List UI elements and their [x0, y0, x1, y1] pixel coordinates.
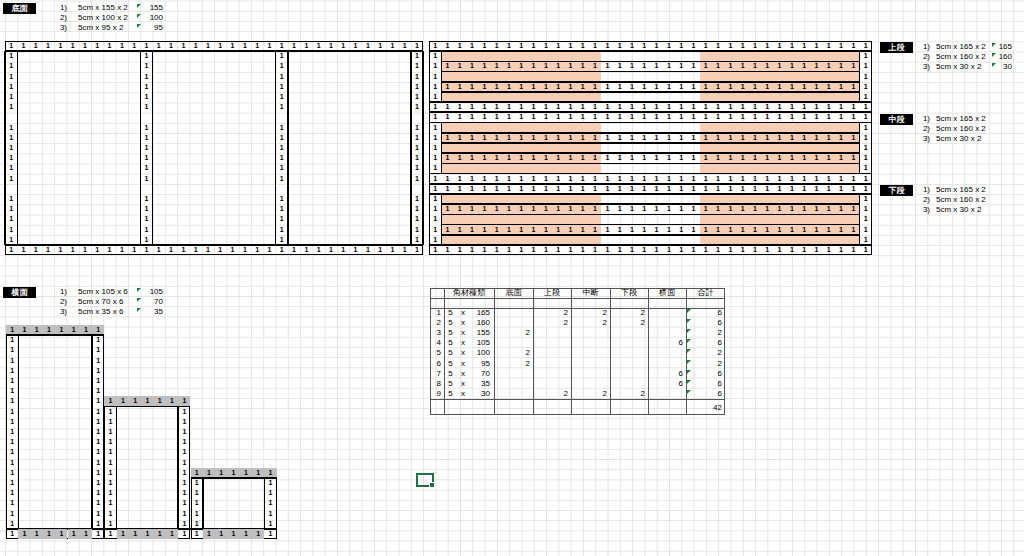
grid-one-cell: 1 [626, 153, 638, 163]
grid-one-cell: 1 [276, 204, 288, 214]
grid-one-cell: 1 [614, 82, 626, 92]
grid-one-cell: 1 [835, 102, 847, 112]
grid-one-cell: 1 [626, 133, 638, 143]
grid-one-cell: 1 [552, 204, 564, 214]
green-triangle-icon [687, 329, 691, 333]
green-triangle-icon [992, 43, 996, 47]
grid-one-cell: 1 [577, 41, 589, 51]
grid-one-cell: 1 [798, 133, 810, 143]
grid-one-cell: 1 [92, 488, 104, 498]
grid-one-cell: 1 [786, 174, 798, 184]
grid-one-cell: 1 [577, 61, 589, 71]
grid-one-cell: 1 [847, 61, 859, 71]
grid-one-cell: 1 [104, 529, 116, 539]
grid-one-cell: 1 [178, 407, 190, 417]
grid-one-cell: 1 [251, 245, 263, 255]
grid-one-cell: 1 [589, 245, 601, 255]
table-cell-count: 6 [686, 308, 722, 318]
grid-one-cell: 1 [614, 153, 626, 163]
grid-one-cell: 1 [687, 245, 699, 255]
grid-one-cell: 1 [5, 163, 17, 173]
grid-one-cell: 1 [264, 529, 276, 539]
grid-one-cell: 1 [491, 102, 503, 112]
grid-one-cell: 1 [454, 153, 466, 163]
grid-one-cell: 1 [601, 133, 613, 143]
grid-one-cell: 1 [411, 153, 423, 163]
grid-one-cell: 1 [860, 72, 872, 82]
label-side-face: 横面 [3, 287, 36, 298]
grid-one-cell: 1 [5, 133, 17, 143]
grid-one-cell: 1 [276, 41, 288, 51]
grid-one-cell: 1 [700, 112, 712, 122]
grid-one-cell: 1 [276, 133, 288, 143]
grid-one-cell: 1 [5, 153, 17, 163]
grid-one-cell: 1 [860, 235, 872, 245]
grid-one-cell: 1 [540, 82, 552, 92]
grid-one-cell: 1 [810, 41, 822, 51]
grid-one-cell: 1 [140, 123, 152, 133]
grid-one-cell: 1 [589, 225, 601, 235]
grid-one-cell: 1 [92, 529, 104, 539]
grid-one-cell: 1 [325, 245, 337, 255]
grid-one-cell: 1 [92, 519, 104, 529]
grid-one-cell: 1 [773, 61, 785, 71]
grid-one-cell: 1 [687, 225, 699, 235]
grid-one-cell: 1 [5, 102, 17, 112]
grid-one-cell: 1 [411, 214, 423, 224]
label-bottom-face: 底面 [3, 3, 36, 14]
grid-one-cell: 1 [700, 184, 712, 194]
grid-one-cell: 1 [749, 41, 761, 51]
grid-one-cell: 1 [577, 153, 589, 163]
grid-one-cell: 1 [860, 225, 872, 235]
grid-one-cell: 1 [454, 184, 466, 194]
table-cell-count: 6 [686, 318, 722, 328]
grid-one-cell: 1 [835, 41, 847, 51]
table-grand-total: 42 [686, 403, 722, 413]
grid-one-cell: 1 [810, 112, 822, 122]
grid-one-cell: 1 [349, 41, 361, 51]
grid-one-cell: 1 [810, 133, 822, 143]
grid-one-cell: 1 [601, 61, 613, 71]
grid-one-cell: 1 [140, 174, 152, 184]
grid-one-cell: 1 [761, 184, 773, 194]
grid-one-cell: 1 [466, 153, 478, 163]
grid-one-cell: 1 [491, 184, 503, 194]
grid-one-cell: 1 [527, 102, 539, 112]
grid-one-cell: 1 [503, 102, 515, 112]
grid-one-cell: 1 [614, 102, 626, 112]
grid-one-cell: 1 [18, 325, 30, 335]
grid-one-cell: 1 [786, 184, 798, 194]
grid-one-cell: 1 [6, 427, 18, 437]
grid-one-cell: 1 [823, 245, 835, 255]
grid-one-cell: 1 [466, 112, 478, 122]
table-cell-length: 70 [469, 369, 490, 379]
table-row-number: 6 [430, 359, 441, 369]
grid-one-cell: 1 [515, 204, 527, 214]
spreadsheet-grid: 1111111111111111111111111111111111111111… [0, 0, 1024, 556]
grid-one-cell: 1 [92, 417, 104, 427]
grid-one-cell: 1 [491, 245, 503, 255]
cut-list-item-value: 35 [137, 307, 163, 317]
grid-one-cell: 1 [564, 82, 576, 92]
grid-one-cell: 1 [860, 153, 872, 163]
table-cell-count: 2 [610, 389, 645, 399]
grid-one-cell: 1 [712, 204, 724, 214]
grid-one-cell: 1 [577, 174, 589, 184]
grid-one-cell: 1 [140, 133, 152, 143]
grid-one-cell: 1 [712, 245, 724, 255]
green-triangle-icon [687, 309, 691, 313]
grid-one-cell: 1 [712, 41, 724, 51]
grid-one-cell: 1 [749, 245, 761, 255]
cut-list-item-number: 1) [918, 185, 930, 195]
grid-one-cell: 1 [178, 458, 190, 468]
grid-one-cell: 1 [749, 133, 761, 143]
grid-one-cell: 1 [6, 498, 18, 508]
grid-one-cell: 1 [104, 498, 116, 508]
grid-one-cell: 1 [700, 133, 712, 143]
grid-one-cell: 1 [441, 245, 453, 255]
cut-list-item-text: 5cm x 155 x 2 [78, 3, 128, 13]
grid-one-cell: 1 [823, 112, 835, 122]
grid-one-cell: 1 [847, 41, 859, 51]
grid-one-cell: 1 [515, 245, 527, 255]
grid-one-cell: 1 [116, 41, 128, 51]
grid-one-cell: 1 [68, 529, 80, 539]
grid-one-cell: 1 [626, 184, 638, 194]
grid-one-cell: 1 [712, 174, 724, 184]
grid-one-cell: 1 [263, 41, 275, 51]
grid-one-cell: 1 [325, 41, 337, 51]
grid-one-cell: 1 [724, 153, 736, 163]
grid-one-cell: 1 [749, 225, 761, 235]
grid-one-cell: 1 [552, 245, 564, 255]
grid-one-cell: 1 [441, 102, 453, 112]
grid-one-cell: 1 [466, 133, 478, 143]
grid-one-cell: 1 [515, 225, 527, 235]
grid-one-cell: 1 [601, 102, 613, 112]
grid-one-cell: 1 [638, 82, 650, 92]
grid-one-cell: 1 [552, 41, 564, 51]
grid-one-cell: 1 [663, 153, 675, 163]
grid-one-cell: 1 [441, 153, 453, 163]
grid-one-cell: 1 [79, 41, 91, 51]
grid-one-cell: 1 [466, 174, 478, 184]
grid-one-cell: 1 [860, 214, 872, 224]
grid-one-cell: 1 [564, 133, 576, 143]
grid-one-cell: 1 [724, 225, 736, 235]
grid-one-cell: 1 [92, 396, 104, 406]
grid-one-cell: 1 [663, 133, 675, 143]
grid-one-cell: 1 [712, 133, 724, 143]
grid-one-cell: 1 [276, 214, 288, 224]
grid-one-cell: 1 [429, 72, 441, 82]
grid-one-cell: 1 [601, 204, 613, 214]
grid-one-cell: 1 [191, 509, 203, 519]
grid-one-cell: 1 [712, 184, 724, 194]
upper-tier-drawing: 1111111111111111111111111111111111111111… [429, 41, 872, 112]
grid-one-cell: 1 [214, 245, 226, 255]
label-lower-tier: 下段 [880, 185, 913, 196]
grid-one-cell: 1 [55, 529, 67, 539]
grid-one-cell: 1 [5, 123, 17, 133]
table-cell-x: x [457, 359, 469, 369]
grid-one-cell: 1 [700, 102, 712, 112]
grid-one-cell: 1 [411, 225, 423, 235]
grid-one-cell: 1 [178, 529, 190, 539]
grid-one-cell: 1 [104, 427, 116, 437]
grid-one-cell: 1 [552, 174, 564, 184]
grid-one-cell: 1 [429, 143, 441, 153]
grid-one-cell: 1 [810, 184, 822, 194]
grid-one-cell: 1 [441, 112, 453, 122]
grid-one-cell: 1 [638, 102, 650, 112]
grid-one-cell: 1 [503, 82, 515, 92]
table-cell-count: 2 [571, 308, 607, 318]
grid-one-cell: 1 [202, 41, 214, 51]
grid-one-cell: 1 [300, 245, 312, 255]
grid-one-cell: 1 [80, 325, 92, 335]
grid-one-cell: 1 [6, 458, 18, 468]
grid-one-cell: 1 [724, 245, 736, 255]
grid-one-cell: 1 [104, 478, 116, 488]
green-triangle-icon [992, 63, 996, 67]
grid-one-cell: 1 [724, 184, 736, 194]
grid-one-cell: 1 [823, 174, 835, 184]
grid-one-cell: 1 [773, 41, 785, 51]
grid-one-cell: 1 [798, 184, 810, 194]
grid-one-cell: 1 [503, 153, 515, 163]
grid-one-cell: 1 [441, 174, 453, 184]
grid-one-cell: 1 [140, 61, 152, 71]
grid-one-cell: 1 [700, 61, 712, 71]
grid-one-cell: 1 [411, 163, 423, 173]
cut-list-item-text: 5cm x 30 x 2 [936, 62, 981, 72]
label-upper-tier: 上段 [880, 42, 913, 53]
grid-one-cell: 1 [103, 245, 115, 255]
grid-one-cell: 1 [411, 82, 423, 92]
table-cell-count: 6 [648, 369, 683, 379]
grid-one-cell: 1 [177, 41, 189, 51]
grid-one-cell: 1 [411, 143, 423, 153]
fill-handle[interactable] [429, 482, 435, 488]
grid-one-cell: 1 [6, 386, 18, 396]
grid-one-cell: 1 [798, 245, 810, 255]
grid-one-cell: 1 [700, 174, 712, 184]
grid-one-cell: 1 [737, 112, 749, 122]
grid-one-cell: 1 [564, 225, 576, 235]
grid-one-cell: 1 [128, 245, 140, 255]
grid-one-cell: 1 [466, 82, 478, 92]
grid-one-cell: 1 [429, 194, 441, 204]
grid-one-cell: 1 [540, 41, 552, 51]
grid-one-cell: 1 [178, 417, 190, 427]
grid-one-cell: 1 [638, 41, 650, 51]
grid-one-cell: 1 [263, 245, 275, 255]
grid-one-cell: 1 [478, 82, 490, 92]
grid-one-cell: 1 [798, 204, 810, 214]
grid-one-cell: 1 [798, 153, 810, 163]
grid-one-cell: 1 [614, 184, 626, 194]
table-cell-length: 155 [469, 328, 490, 338]
grid-one-cell: 1 [6, 325, 18, 335]
grid-one-cell: 1 [92, 376, 104, 386]
grid-one-cell: 1 [749, 102, 761, 112]
cut-list-item-text: 5cm x 160 x 2 [936, 195, 986, 205]
table-cell-length: 30 [469, 389, 490, 399]
grid-one-cell: 1 [810, 245, 822, 255]
grid-one-cell: 1 [104, 447, 116, 457]
grid-one-cell: 1 [515, 61, 527, 71]
grid-one-cell: 1 [239, 41, 251, 51]
grid-one-cell: 1 [166, 529, 178, 539]
grid-one-cell: 1 [712, 112, 724, 122]
grid-one-cell: 1 [663, 112, 675, 122]
grid-one-cell: 1 [847, 245, 859, 255]
grid-one-cell: 1 [638, 204, 650, 214]
grid-one-cell: 1 [860, 41, 872, 51]
grid-one-cell: 1 [92, 478, 104, 488]
grid-one-cell: 1 [178, 519, 190, 529]
grid-one-cell: 1 [835, 225, 847, 235]
grid-one-cell: 1 [675, 204, 687, 214]
table-cell-x: x [457, 338, 469, 348]
grid-one-cell: 1 [860, 102, 872, 112]
grid-one-cell: 1 [178, 437, 190, 447]
grid-one-cell: 1 [276, 194, 288, 204]
grid-one-cell: 1 [140, 143, 152, 153]
grid-one-cell: 1 [313, 245, 325, 255]
grid-one-cell: 1 [79, 245, 91, 255]
grid-one-cell: 1 [6, 468, 18, 478]
grid-one-cell: 1 [577, 112, 589, 122]
grid-one-cell: 1 [540, 153, 552, 163]
grid-one-cell: 1 [847, 184, 859, 194]
grid-one-cell: 1 [798, 225, 810, 235]
grid-one-cell: 1 [601, 82, 613, 92]
grid-one-cell: 1 [650, 61, 662, 71]
grid-one-cell: 1 [92, 458, 104, 468]
grid-one-cell: 1 [411, 41, 423, 51]
grid-one-cell: 1 [6, 519, 18, 529]
active-cell-selection[interactable] [416, 473, 434, 487]
grid-one-cell: 1 [429, 51, 441, 61]
table-cell-x: x [457, 308, 469, 318]
grid-one-cell: 1 [515, 153, 527, 163]
green-triangle-icon [687, 349, 691, 353]
cut-list-item-text: 5cm x 30 x 2 [936, 205, 981, 215]
grid-one-cell: 1 [601, 184, 613, 194]
grid-one-cell: 1 [835, 204, 847, 214]
grid-one-cell: 1 [411, 133, 423, 143]
grid-one-cell: 1 [527, 225, 539, 235]
grid-one-cell: 1 [313, 41, 325, 51]
grid-one-cell: 1 [478, 204, 490, 214]
table-cell-x: x [457, 369, 469, 379]
grid-one-cell: 1 [503, 133, 515, 143]
grid-one-cell: 1 [663, 225, 675, 235]
middle-tier-drawing: 1111111111111111111111111111111111111111… [429, 112, 872, 183]
grid-one-cell: 1 [761, 61, 773, 71]
grid-one-cell: 1 [191, 478, 203, 488]
grid-one-cell: 1 [626, 204, 638, 214]
grid-one-cell: 1 [43, 529, 55, 539]
grid-one-cell: 1 [454, 204, 466, 214]
cut-list-item-number: 1) [55, 3, 67, 13]
grid-one-cell: 1 [601, 174, 613, 184]
grid-one-cell: 1 [140, 235, 152, 245]
grid-one-cell: 1 [761, 102, 773, 112]
grid-one-cell: 1 [503, 41, 515, 51]
grid-one-cell: 1 [6, 396, 18, 406]
grid-one-cell: 1 [724, 82, 736, 92]
grid-one-cell: 1 [399, 41, 411, 51]
grid-one-cell: 1 [749, 174, 761, 184]
table-line [430, 399, 725, 400]
grid-one-cell: 1 [527, 174, 539, 184]
green-triangle-icon [137, 4, 141, 8]
grid-one-cell: 1 [92, 447, 104, 457]
grid-one-cell: 1 [140, 92, 152, 102]
grid-one-cell: 1 [761, 204, 773, 214]
green-triangle-icon [992, 53, 996, 57]
grid-one-cell: 1 [773, 184, 785, 194]
grid-one-cell: 1 [564, 204, 576, 214]
grid-one-cell: 1 [614, 112, 626, 122]
grid-one-cell: 1 [638, 153, 650, 163]
grid-one-cell: 1 [626, 41, 638, 51]
grid-one-cell: 1 [178, 498, 190, 508]
grid-one-cell: 1 [441, 41, 453, 51]
grid-one-cell: 1 [798, 61, 810, 71]
grid-one-cell: 1 [140, 214, 152, 224]
grid-one-cell: 1 [552, 112, 564, 122]
green-triangle-icon [687, 390, 691, 394]
grid-one-cell: 1 [288, 245, 300, 255]
grid-one-cell: 1 [140, 82, 152, 92]
grid-one-cell: 1 [429, 184, 441, 194]
grid-one-cell: 1 [18, 529, 30, 539]
grid-one-cell: 1 [454, 82, 466, 92]
grid-one-cell: 1 [478, 112, 490, 122]
grid-one-cell: 1 [835, 153, 847, 163]
grid-one-cell: 1 [429, 41, 441, 51]
grid-one-cell: 1 [129, 529, 141, 539]
grid-one-cell: 1 [650, 204, 662, 214]
grid-one-cell: 1 [454, 112, 466, 122]
grid-one-cell: 1 [140, 204, 152, 214]
grid-one-cell: 1 [466, 225, 478, 235]
grid-one-cell: 1 [466, 61, 478, 71]
grid-one-cell: 1 [687, 82, 699, 92]
grid-one-cell: 1 [540, 133, 552, 143]
grid-one-cell: 1 [527, 61, 539, 71]
grid-one-cell: 1 [761, 245, 773, 255]
grid-one-cell: 1 [564, 102, 576, 112]
table-cell-x: x [457, 328, 469, 338]
grid-one-cell: 1 [650, 82, 662, 92]
grid-one-cell: 1 [860, 133, 872, 143]
grid-one-cell: 1 [478, 153, 490, 163]
grid-one-cell: 1 [773, 245, 785, 255]
grid-one-cell: 1 [154, 529, 166, 539]
grid-one-cell: 1 [5, 143, 17, 153]
grid-one-cell: 1 [264, 498, 276, 508]
grid-one-cell: 1 [276, 82, 288, 92]
table-cell-width: 5 [444, 318, 457, 328]
